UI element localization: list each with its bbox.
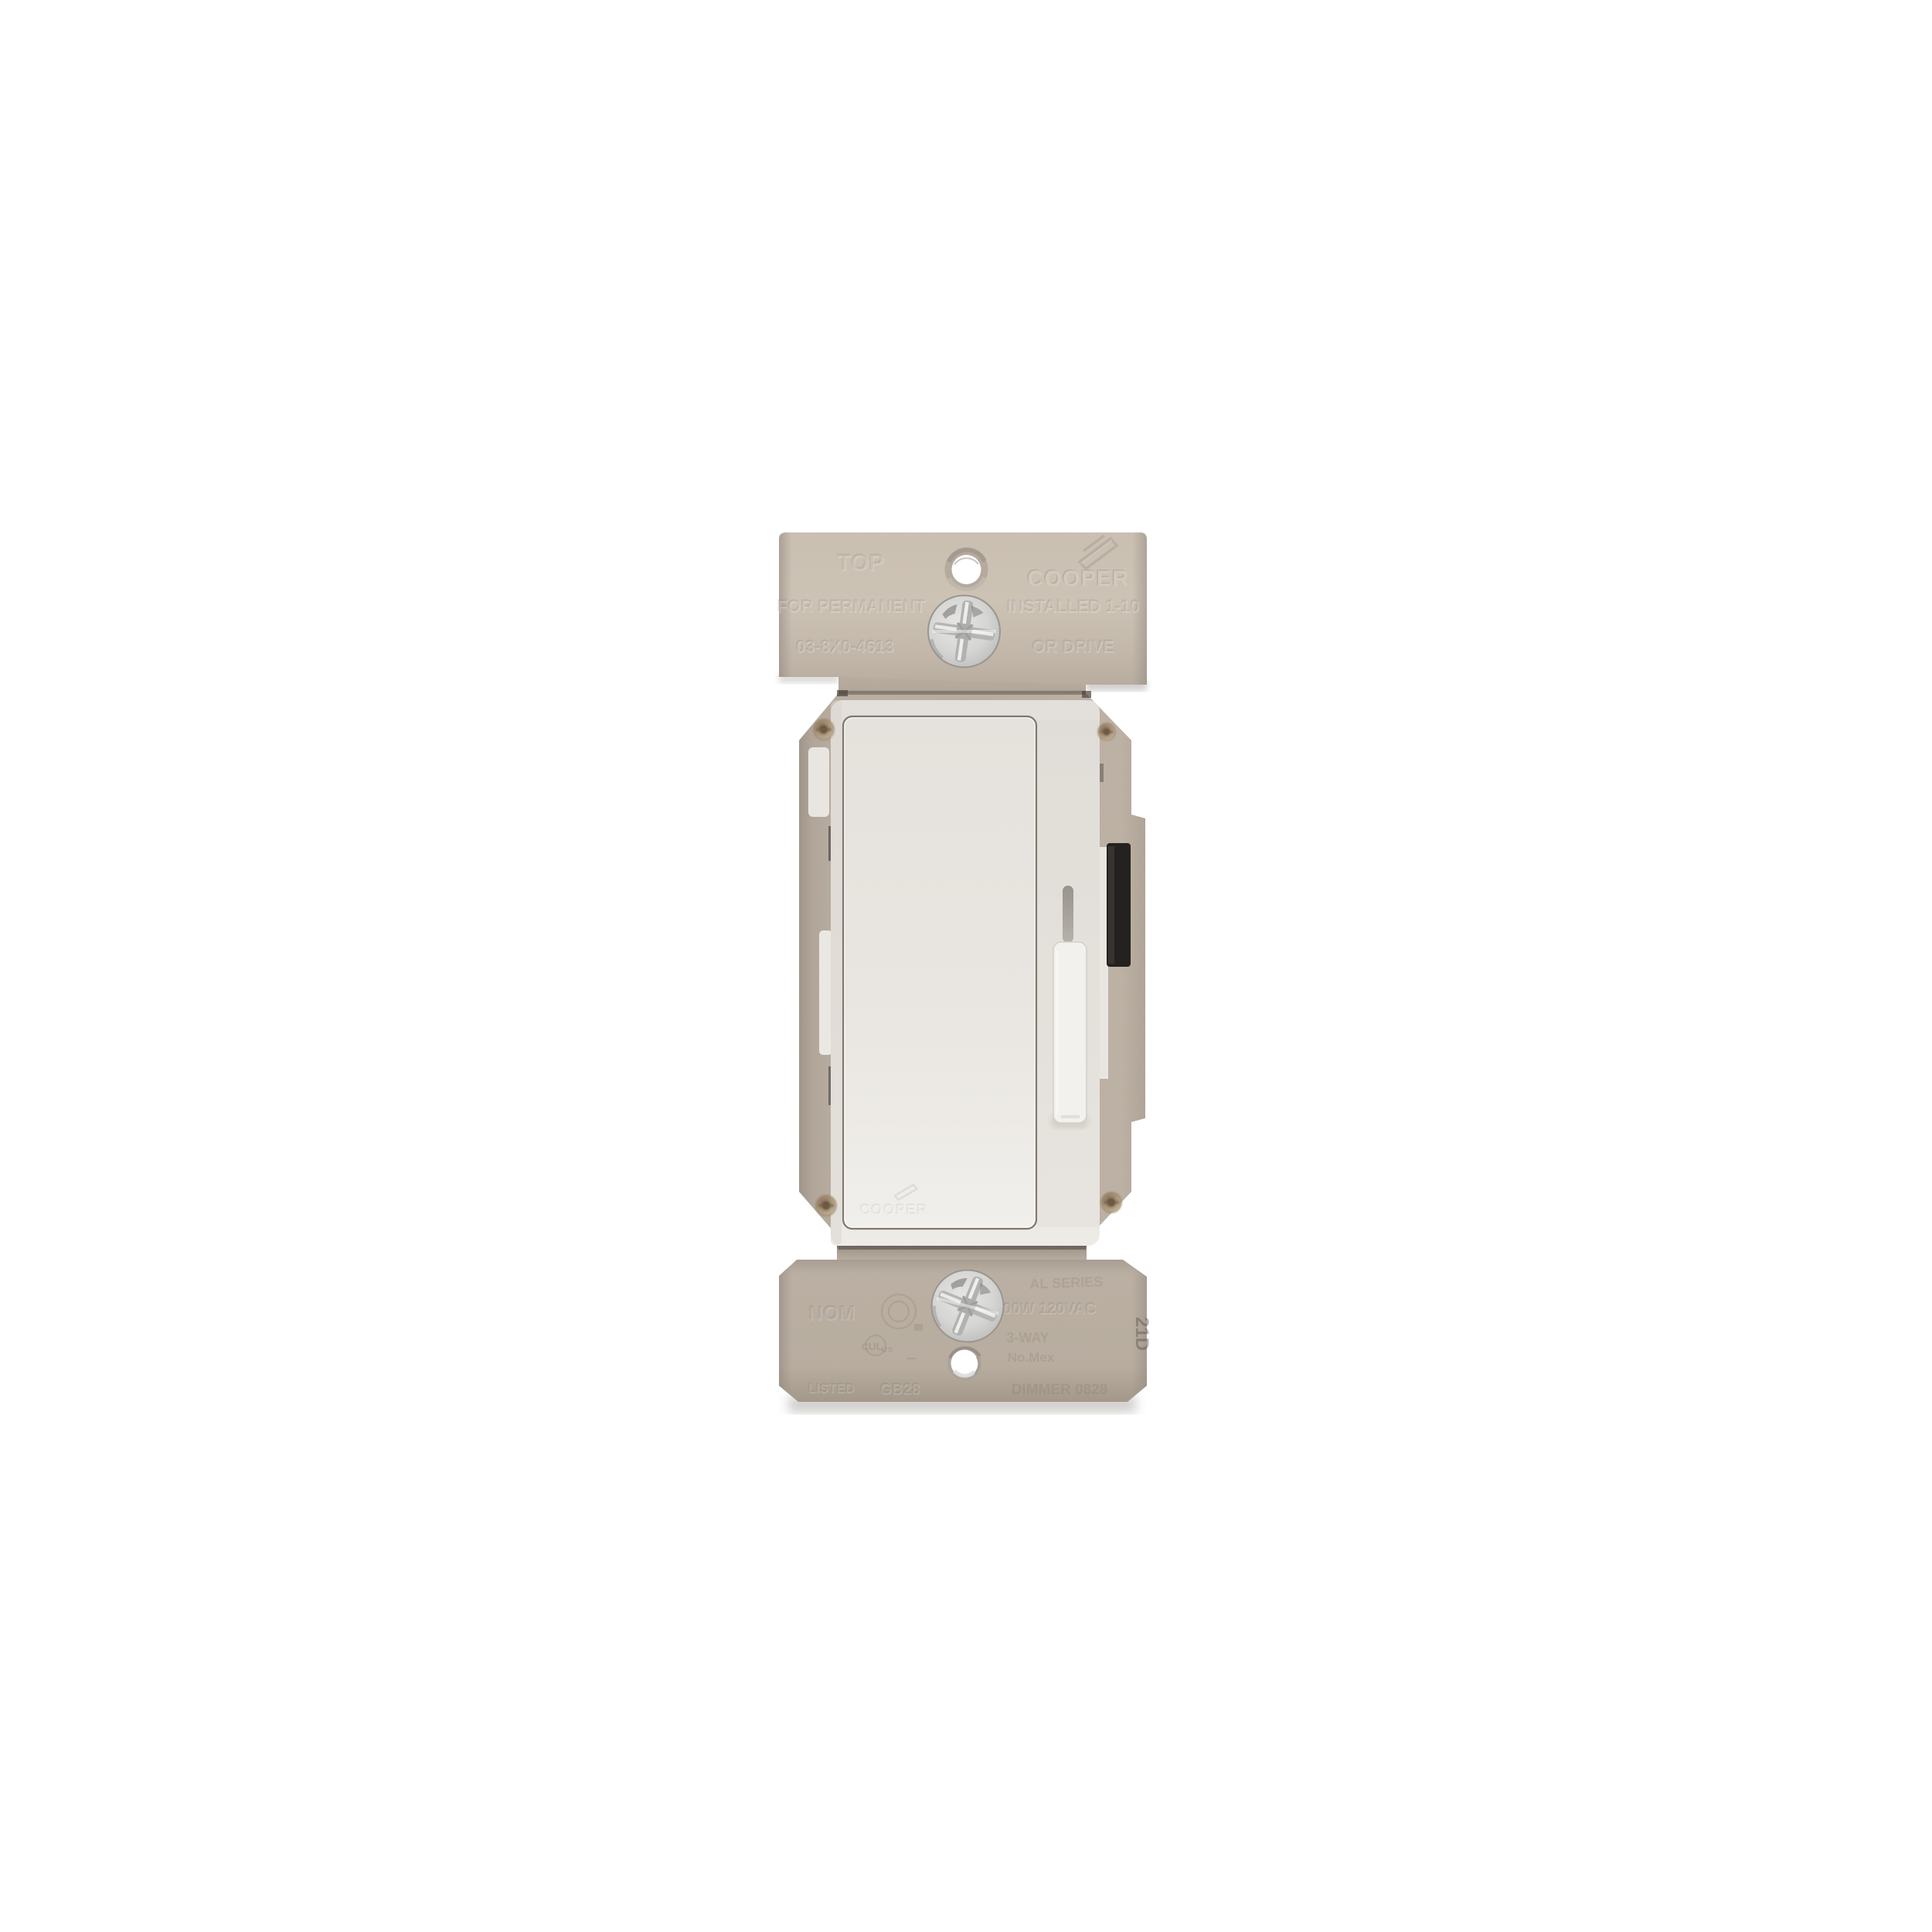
- svg-text:COOPER: COOPER: [1028, 567, 1130, 592]
- svg-text:03-8X0-4613: 03-8X0-4613: [797, 638, 895, 657]
- svg-text:DIMMER 0828: DIMMER 0828: [1012, 1382, 1108, 1398]
- svg-text:UL: UL: [869, 1340, 883, 1352]
- svg-text:3-WAY: 3-WAY: [1006, 1330, 1049, 1345]
- svg-text:600W 120VAC: 600W 120VAC: [995, 1301, 1097, 1318]
- svg-text:TOP: TOP: [838, 551, 885, 577]
- svg-text:AL SERIES: AL SERIES: [1029, 1274, 1103, 1291]
- svg-text:GB28: GB28: [880, 1382, 920, 1399]
- svg-text:NOM: NOM: [809, 1302, 856, 1325]
- svg-text:No.Mex: No.Mex: [1008, 1350, 1055, 1365]
- svg-text:COOPER: COOPER: [860, 1203, 928, 1219]
- svg-text:21D: 21D: [1131, 1317, 1152, 1351]
- svg-text:OR DRIVE: OR DRIVE: [1032, 638, 1114, 657]
- svg-text:LISTED: LISTED: [808, 1382, 855, 1396]
- svg-text:INSTALLED 1-10: INSTALLED 1-10: [1007, 597, 1140, 617]
- svg-text:FOR PERMANENT: FOR PERMANENT: [777, 597, 926, 617]
